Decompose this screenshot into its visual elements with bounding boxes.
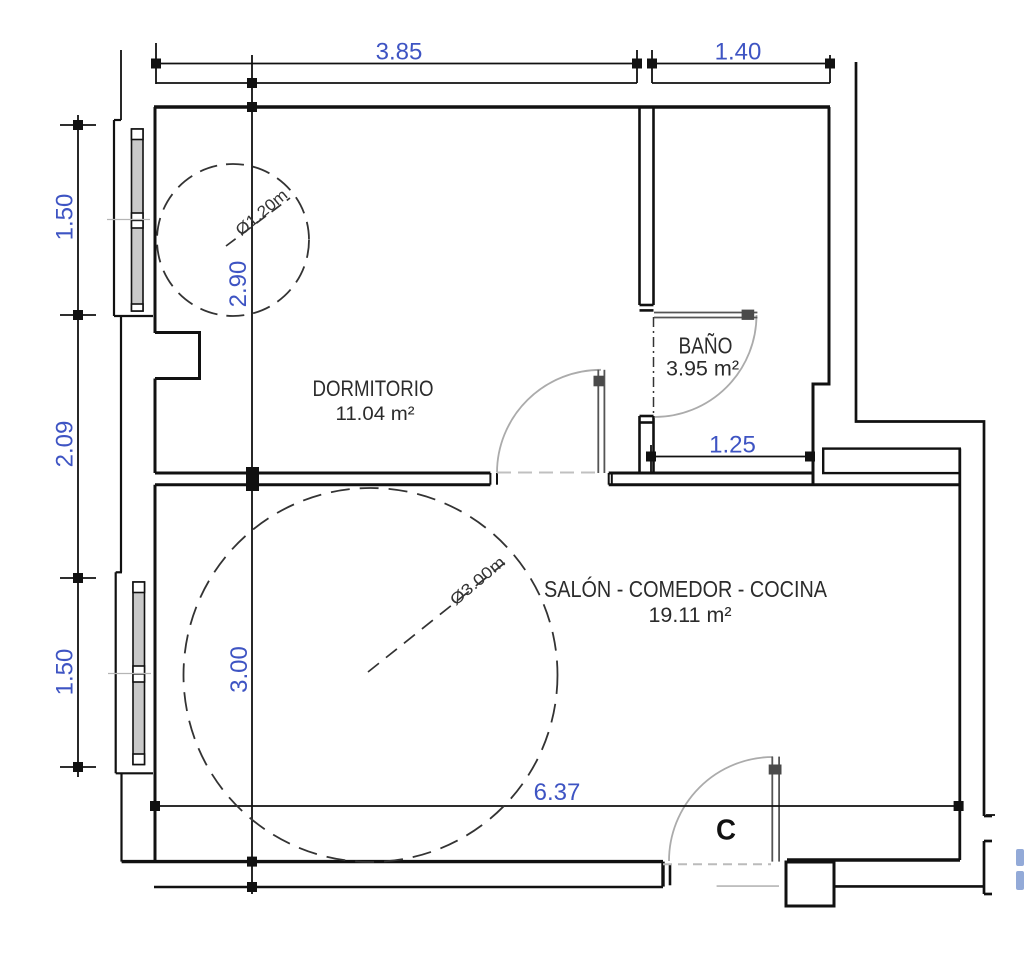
svg-text:BAÑO: BAÑO	[679, 333, 733, 359]
svg-text:2.90: 2.90	[225, 261, 252, 308]
svg-text:SALÓN - COMEDOR - COCINA: SALÓN - COMEDOR - COCINA	[544, 576, 828, 602]
svg-text:1.25: 1.25	[709, 432, 756, 459]
svg-text:1.50: 1.50	[52, 194, 79, 241]
svg-text:1.40: 1.40	[715, 39, 762, 66]
svg-text:19.11 m²: 19.11 m²	[649, 604, 732, 627]
svg-text:2.09: 2.09	[52, 421, 79, 468]
svg-text:11.04 m²: 11.04 m²	[336, 403, 416, 425]
svg-text:6.37: 6.37	[534, 779, 581, 806]
svg-text:1.50: 1.50	[52, 649, 79, 696]
svg-text:DORMITORIO: DORMITORIO	[313, 376, 434, 401]
svg-text:3.95 m²: 3.95 m²	[666, 358, 739, 381]
svg-text:3.00: 3.00	[226, 646, 253, 693]
svg-text:3.85: 3.85	[376, 39, 423, 66]
svg-text:C: C	[716, 815, 736, 847]
